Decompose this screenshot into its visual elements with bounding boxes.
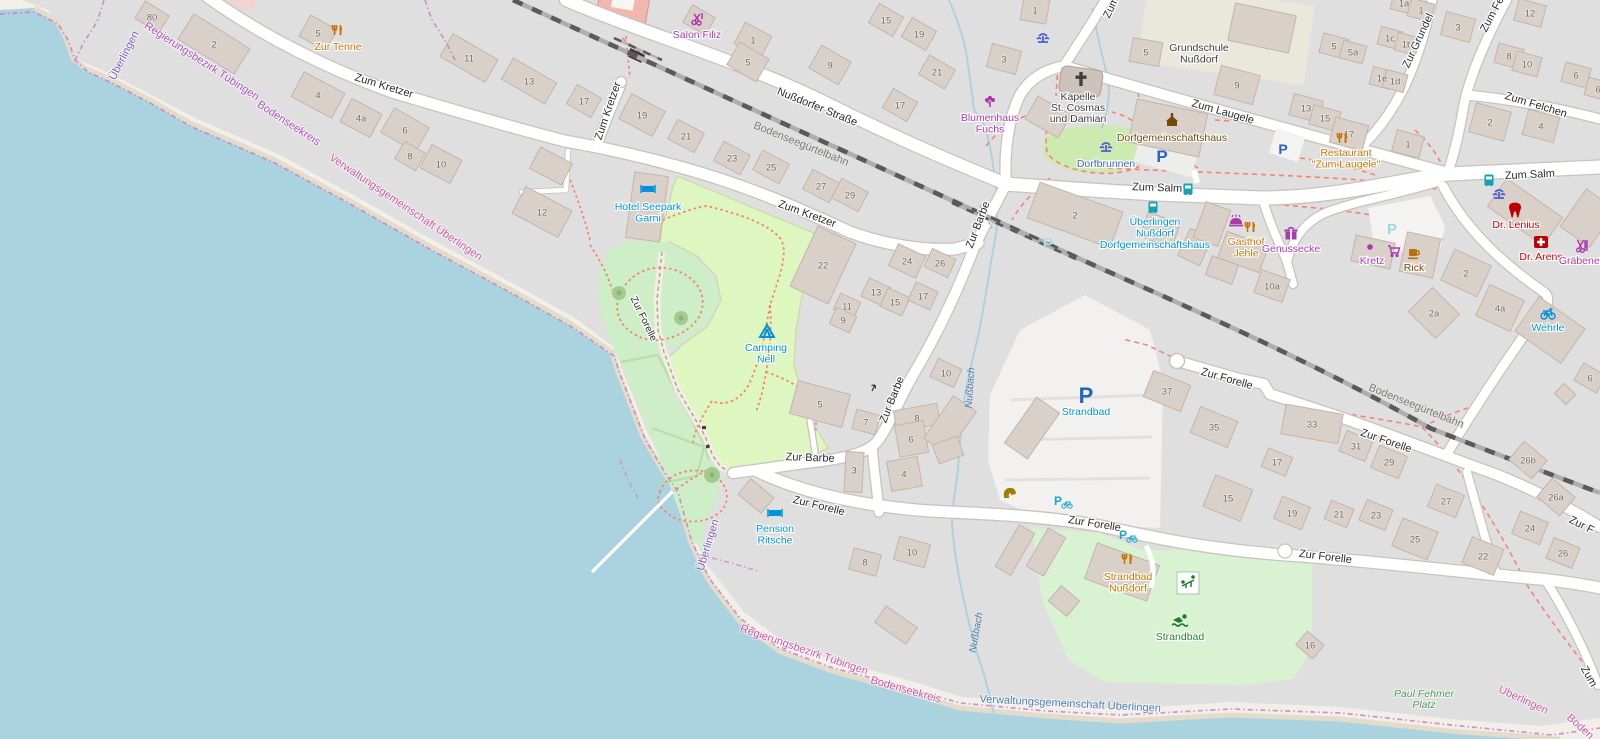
svg-text:16: 16 <box>1305 641 1316 652</box>
svg-text:Nell: Nell <box>757 354 775 366</box>
svg-text:6: 6 <box>1595 85 1600 96</box>
svg-text:21: 21 <box>1334 510 1345 521</box>
svg-text:und Damian: und Damian <box>1050 113 1107 125</box>
svg-text:1d: 1d <box>1390 77 1401 88</box>
svg-text:23: 23 <box>727 154 738 165</box>
svg-text:Dr. Lenius: Dr. Lenius <box>1492 219 1539 231</box>
svg-text:Strandbad: Strandbad <box>1156 631 1205 643</box>
svg-text:22: 22 <box>818 261 829 272</box>
svg-text:5: 5 <box>1331 42 1336 53</box>
svg-text:Blumenhaus: Blumenhaus <box>961 112 1019 124</box>
svg-text:37: 37 <box>1162 387 1173 398</box>
svg-text:10: 10 <box>436 160 447 171</box>
svg-text:2a: 2a <box>1429 309 1440 320</box>
svg-text:8: 8 <box>1506 52 1511 63</box>
svg-text:24: 24 <box>1525 524 1536 535</box>
svg-text:1: 1 <box>1405 140 1410 151</box>
svg-text:12: 12 <box>1525 9 1536 20</box>
svg-text:1: 1 <box>750 36 755 47</box>
svg-text:17: 17 <box>579 97 590 108</box>
svg-text:7: 7 <box>863 418 868 429</box>
svg-text:Kretz: Kretz <box>1360 255 1385 267</box>
svg-text:17: 17 <box>895 101 906 112</box>
svg-text:6: 6 <box>402 126 407 137</box>
svg-text:P: P <box>1278 141 1287 157</box>
svg-text:21: 21 <box>681 132 692 143</box>
svg-text:Platz: Platz <box>1412 699 1436 711</box>
svg-text:15: 15 <box>1223 494 1234 505</box>
svg-text:Camping: Camping <box>745 342 787 354</box>
svg-text:5: 5 <box>315 29 320 40</box>
svg-text:26: 26 <box>935 259 946 270</box>
svg-text:5: 5 <box>745 58 750 69</box>
svg-text:4a: 4a <box>1495 304 1506 315</box>
svg-text:Zur Barbe: Zur Barbe <box>785 451 834 465</box>
svg-text:6: 6 <box>1573 71 1578 82</box>
svg-text:19: 19 <box>637 111 648 122</box>
svg-text:6: 6 <box>1587 374 1592 385</box>
svg-text:Rick: Rick <box>1404 262 1425 274</box>
svg-text:Wehrle: Wehrle <box>1531 322 1564 334</box>
svg-text:19: 19 <box>1287 509 1298 520</box>
svg-text:23: 23 <box>1371 511 1382 522</box>
svg-text:17: 17 <box>918 292 929 303</box>
svg-text:26a: 26a <box>1548 493 1565 504</box>
svg-text:Garni: Garni <box>635 213 661 225</box>
svg-text:9: 9 <box>840 316 845 327</box>
svg-text:26b: 26b <box>1520 456 1536 467</box>
svg-text:4: 4 <box>315 91 320 102</box>
svg-text:Zur Tenne: Zur Tenne <box>314 41 361 53</box>
svg-text:19: 19 <box>914 30 925 41</box>
svg-text:2: 2 <box>1487 118 1492 129</box>
svg-text:3: 3 <box>1455 23 1460 34</box>
svg-text:P: P <box>1387 221 1397 238</box>
svg-text:2: 2 <box>1072 211 1077 222</box>
svg-text:24: 24 <box>902 257 913 268</box>
svg-text:25: 25 <box>1410 535 1421 546</box>
svg-text:3: 3 <box>1001 55 1006 66</box>
svg-text:Salon Filiz: Salon Filiz <box>673 29 721 41</box>
svg-text:13: 13 <box>871 288 882 299</box>
svg-text:4a: 4a <box>356 114 367 125</box>
svg-text:Gasthof: Gasthof <box>1228 236 1265 248</box>
svg-text:5a: 5a <box>1348 48 1359 59</box>
svg-text:31: 31 <box>1351 442 1362 453</box>
svg-text:29: 29 <box>1384 458 1395 469</box>
svg-text:13: 13 <box>524 77 535 88</box>
svg-text:27: 27 <box>1441 497 1452 508</box>
svg-text:P: P <box>1054 494 1062 508</box>
svg-text:Ritsche: Ritsche <box>757 535 792 547</box>
svg-text:15: 15 <box>890 298 901 309</box>
svg-text:Restaurant: Restaurant <box>1320 147 1371 159</box>
svg-text:27: 27 <box>816 182 827 193</box>
svg-text:25: 25 <box>766 163 777 174</box>
svg-text:Grundschule: Grundschule <box>1169 42 1229 54</box>
svg-text:35: 35 <box>1209 423 1220 434</box>
svg-text:9: 9 <box>827 61 832 72</box>
svg-text:10: 10 <box>1522 60 1533 71</box>
svg-text:21: 21 <box>932 68 943 79</box>
svg-text:8: 8 <box>862 558 867 569</box>
svg-text:Fuchs: Fuchs <box>976 124 1005 136</box>
svg-text:Pension: Pension <box>756 523 794 535</box>
svg-text:P: P <box>1043 236 1054 253</box>
svg-text:2: 2 <box>1463 269 1468 280</box>
svg-text:17: 17 <box>1272 458 1283 469</box>
svg-text:29: 29 <box>845 191 856 202</box>
svg-text:12: 12 <box>537 208 548 219</box>
svg-text:Überlingen: Überlingen <box>1130 216 1181 228</box>
svg-text:Genussecke: Genussecke <box>1262 243 1321 255</box>
svg-text:8: 8 <box>407 152 412 163</box>
svg-text:8: 8 <box>914 414 919 425</box>
svg-text:26: 26 <box>1558 549 1569 560</box>
svg-text:5: 5 <box>817 400 822 411</box>
svg-text:6: 6 <box>908 435 913 446</box>
svg-text:"Zum Laugele": "Zum Laugele" <box>1312 159 1381 171</box>
svg-text:Gräbener: Gräbener <box>1559 255 1600 267</box>
svg-text:4: 4 <box>901 470 906 481</box>
svg-text:2: 2 <box>211 40 216 51</box>
svg-text:Dorfgemeinschaftshaus: Dorfgemeinschaftshaus <box>1117 132 1227 144</box>
svg-text:Strandbad: Strandbad <box>1104 571 1153 583</box>
svg-text:Nußdorf: Nußdorf <box>1136 228 1174 240</box>
svg-text:Hotel Seepark: Hotel Seepark <box>615 201 682 213</box>
svg-text:Strandbad: Strandbad <box>1062 406 1111 418</box>
svg-text:13: 13 <box>1301 104 1312 115</box>
svg-text:P: P <box>1156 147 1167 166</box>
svg-text:22: 22 <box>1478 552 1489 563</box>
svg-text:1e: 1e <box>1377 74 1388 85</box>
svg-text:Nußdorf: Nußdorf <box>1180 54 1218 66</box>
svg-text:15: 15 <box>881 16 892 27</box>
svg-text:1a: 1a <box>1399 0 1410 10</box>
svg-text:Jehle: Jehle <box>1233 248 1258 260</box>
svg-text:10a: 10a <box>1264 282 1281 293</box>
svg-text:11: 11 <box>842 302 852 313</box>
svg-text:1c: 1c <box>1385 34 1395 45</box>
svg-text:10: 10 <box>941 369 952 380</box>
svg-text:9: 9 <box>1234 81 1239 92</box>
svg-text:Dorfgemeinschaftshaus: Dorfgemeinschaftshaus <box>1100 239 1210 251</box>
svg-text:Dr. Arens: Dr. Arens <box>1519 251 1562 263</box>
svg-text:4: 4 <box>1538 122 1543 133</box>
svg-text:11: 11 <box>464 54 474 65</box>
svg-text:Dorfbrunnen: Dorfbrunnen <box>1077 158 1136 170</box>
svg-text:1: 1 <box>1032 6 1037 17</box>
svg-text:10: 10 <box>907 548 918 559</box>
svg-text:P: P <box>1079 383 1094 408</box>
svg-text:33: 33 <box>1307 420 1318 431</box>
svg-text:15: 15 <box>1320 114 1331 125</box>
svg-text:Nußdorf: Nußdorf <box>1109 583 1147 595</box>
svg-text:Zum Salm: Zum Salm <box>1132 181 1183 195</box>
svg-text:3: 3 <box>851 466 856 477</box>
svg-text:5: 5 <box>1143 48 1148 59</box>
